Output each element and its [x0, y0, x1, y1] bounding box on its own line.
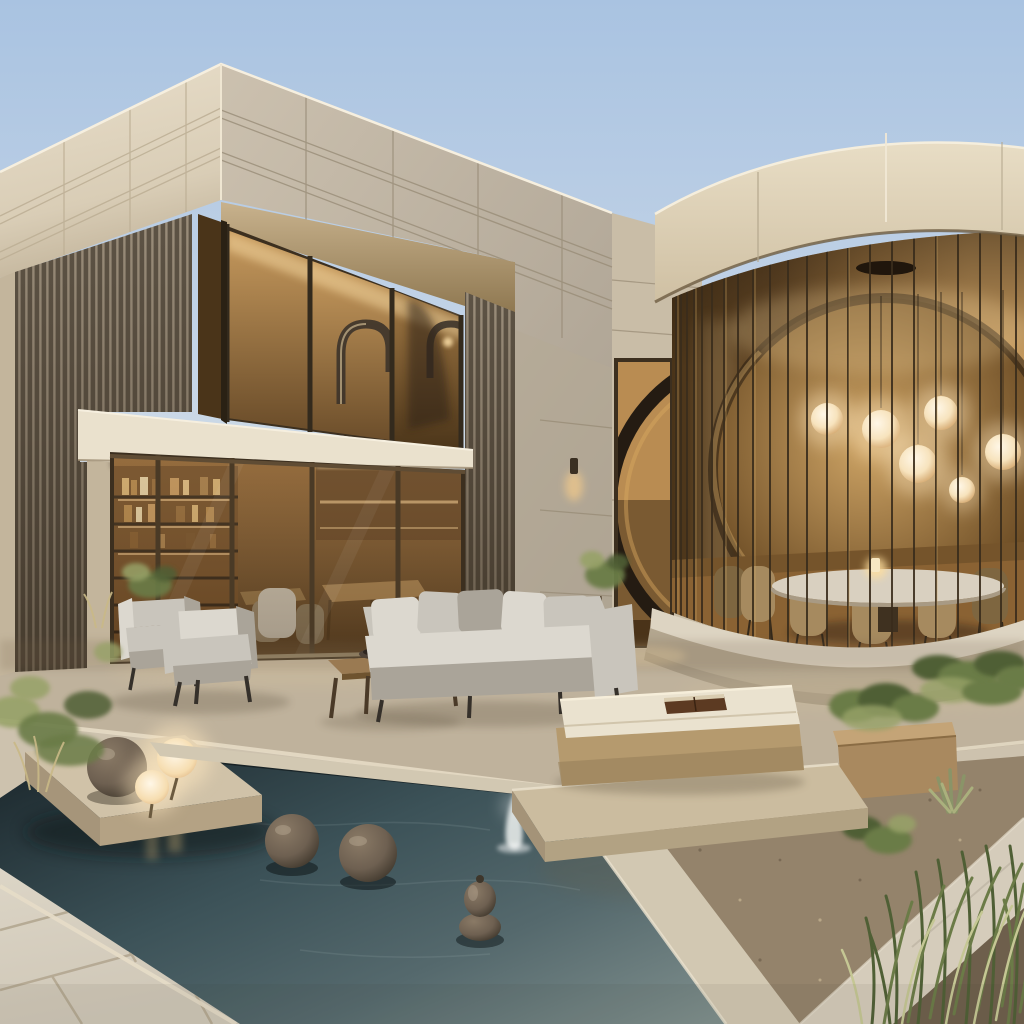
outdoor-furniture — [110, 589, 638, 731]
table-candle — [865, 557, 887, 579]
villa-rendering — [0, 0, 1024, 1024]
daybed — [556, 686, 804, 786]
stone-pier — [87, 455, 110, 666]
sofa-armrest — [588, 604, 638, 698]
sconce-glow — [565, 471, 583, 501]
round-pavilion — [644, 133, 1024, 707]
vignette — [0, 984, 1024, 1024]
ceiling-disc — [856, 261, 916, 275]
scene-canvas — [0, 0, 1024, 1024]
pavilion-glazing — [660, 220, 1024, 666]
